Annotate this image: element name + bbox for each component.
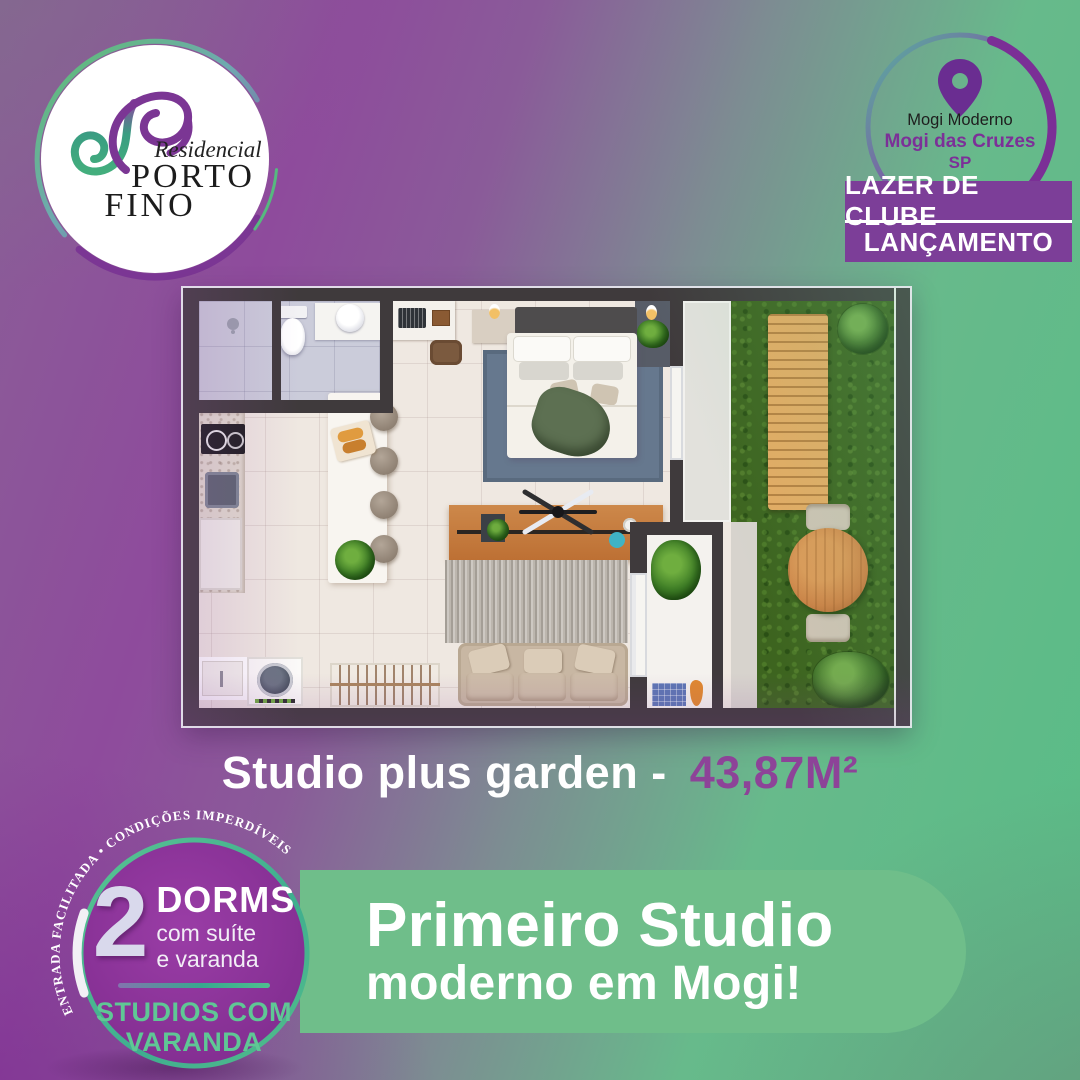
porto-fino-logo: Residencial PORTO FINO [30,35,300,305]
garden-paved-strip [731,522,757,708]
ribbon-stack: LAZER DE CLUBE LANÇAMENTO [845,181,1072,262]
offer-detail2: e varanda [156,947,295,973]
badge-divider [118,983,270,988]
bathroom-sink [336,304,364,332]
bed-pillow [513,336,571,362]
garden-deck [768,314,828,510]
washer-drum [257,663,293,697]
offer-footer1: STUDIOS COM [84,997,304,1027]
poster-canvas: Residencial PORTO FINO Mogi Moderno Mogi… [0,0,1080,1080]
island-plant [335,540,375,580]
sofa-pillow [524,649,562,673]
location-text-block: Mogi Moderno Mogi das Cruzes SP [850,110,1070,174]
ceiling-fan-icon [519,484,597,540]
doormat [652,683,686,706]
wall-bottom [183,708,910,726]
bedroom-plant [637,320,669,348]
desk-chair [430,340,462,365]
laptop [398,308,426,328]
wall-top [183,288,910,301]
balcony-door [670,366,683,460]
garden-bush-top [838,304,888,354]
sofa-pillow [574,643,617,676]
burner-icon [227,432,244,449]
toilet [280,318,305,355]
map-pin-icon [938,59,982,117]
washing-machine [247,657,303,706]
sofa-seat [518,673,566,701]
bed [507,333,637,458]
wall-bathroom-right [380,288,393,413]
location-line1: Mogi Moderno [850,110,1070,130]
garden-bush-bottom [813,652,889,708]
burner-icon [206,430,227,451]
headline-line2: moderno em Mogi! [366,959,966,1010]
living-rug [445,560,628,643]
headline-box: Primeiro Studio moderno em Mogi! [300,870,966,1033]
stool [370,491,398,519]
offer-number: 2 [93,878,149,966]
rack-rod [330,683,440,686]
side-setback-strip [683,301,731,522]
sofa-seat [570,673,618,701]
bed-headboard [515,307,637,335]
wall-bathroom-bottom [199,400,380,413]
offer-footer2: VARANDA [84,1027,304,1057]
console-plant [487,519,509,541]
wall-art [432,310,450,326]
toilet-tank [277,306,307,318]
headline-line1: Primeiro Studio [366,893,966,959]
caption-area-value: 43,87M² [690,747,859,798]
faucet-icon [220,671,223,687]
logo-name-line2: FINO [104,187,195,224]
kitchen-sink [205,472,239,508]
cooktop [201,424,245,454]
wall-varanda-top [630,522,723,535]
pendant-lamp-icon [646,305,657,320]
accent-pillow [573,362,623,380]
offer-unit: DORMS [156,882,295,918]
pendant-lamp-icon [489,304,500,319]
shower-head [227,318,239,330]
sofa [458,643,628,706]
floorplan-image [183,288,910,726]
bathroom-divider-wall [272,301,281,400]
wall-left [183,288,199,726]
location-line2: Mogi das Cruzes [850,130,1070,153]
ribbon-lazer: LAZER DE CLUBE [845,181,1072,220]
offer-detail1: com suíte [156,921,295,947]
bed-pillow [573,336,631,362]
wall-varanda-right [712,522,723,708]
accent-pillow [519,362,569,380]
living-window [630,573,647,677]
washer-controls [255,699,295,703]
utility-tank [198,657,247,700]
garden-chair-bottom [806,614,850,642]
garden-chair-top [806,504,850,530]
kitchen-cabinet [199,518,242,590]
drying-rack [330,663,440,707]
ribbon-lancamento: LANÇAMENTO [845,223,1072,262]
offer-badge-content: 2 DORMS com suíte e varanda STUDIOS COM … [84,878,304,1057]
wall-right [894,288,910,726]
garden-table [788,528,868,612]
sofa-seat [466,673,514,701]
decor-bowl-teal [609,532,625,548]
